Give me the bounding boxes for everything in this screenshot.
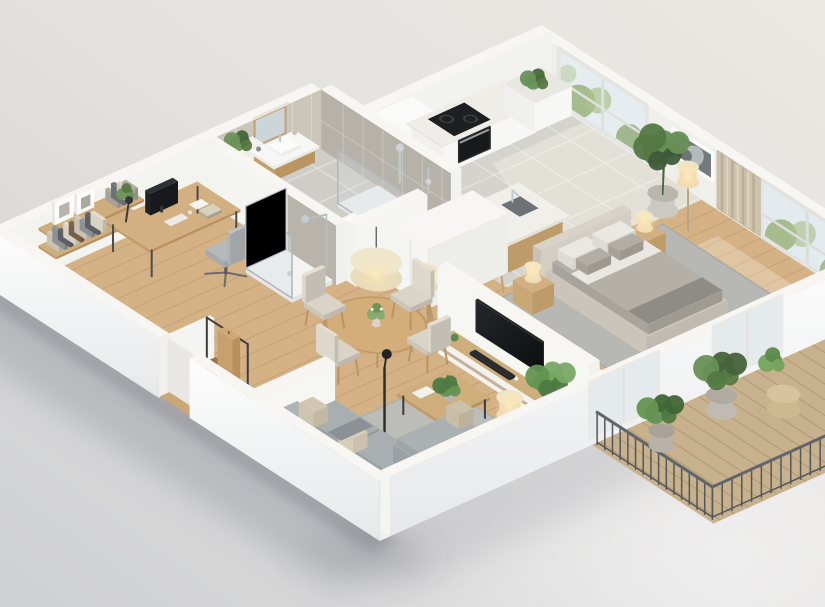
desk-lamp-head — [125, 196, 133, 204]
shower-head — [301, 215, 309, 223]
shower-handle — [425, 179, 431, 185]
mouse — [188, 210, 192, 214]
table-flower — [380, 308, 383, 311]
lamp-glow — [520, 258, 546, 284]
remote — [514, 377, 518, 381]
chair-leg — [225, 272, 226, 286]
arc-lamp-head — [382, 349, 392, 359]
console-plant — [451, 334, 459, 342]
lamp-glow — [359, 258, 393, 292]
lamp-glow — [632, 208, 658, 234]
soap-bottle — [256, 147, 261, 152]
soap-bottle — [292, 130, 297, 135]
isometric-scene — [0, 0, 825, 607]
chair-leg — [205, 272, 226, 273]
table-flower — [371, 308, 374, 311]
apartment-floorplan-3d-render — [0, 0, 825, 607]
shower-head — [396, 144, 404, 152]
lamp-glow — [673, 162, 703, 192]
